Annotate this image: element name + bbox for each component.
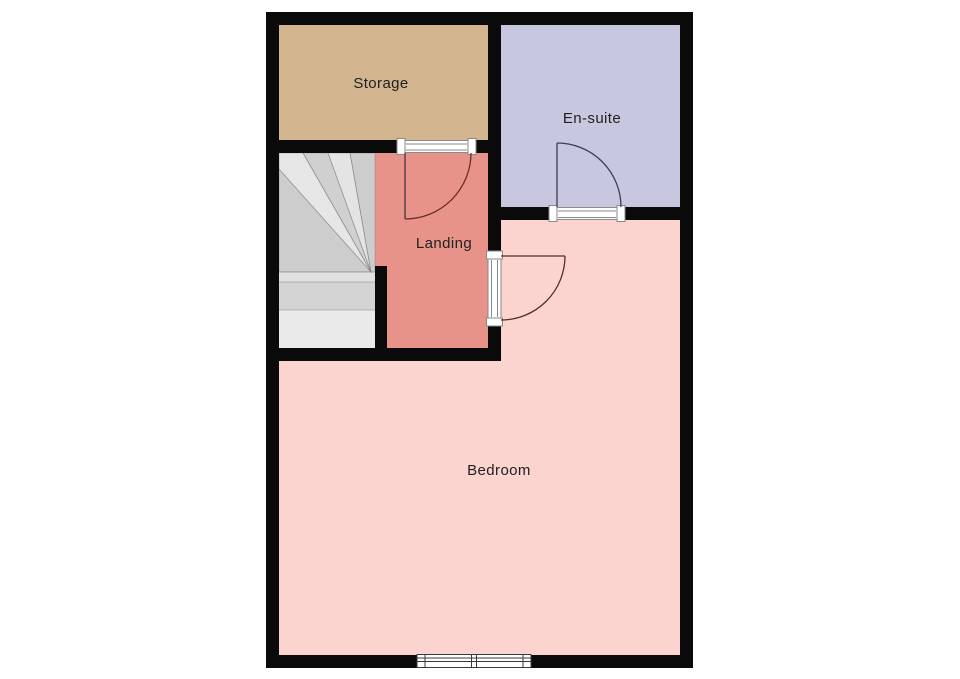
wall-landing-bedroom — [279, 348, 501, 361]
room-label-landing: Landing — [416, 235, 472, 252]
storage-door-jamb — [397, 139, 405, 155]
bedroom-door-frame — [488, 252, 501, 326]
room-label-storage: Storage — [353, 75, 408, 92]
bedroom-door-jamb — [487, 318, 503, 326]
storage-door-jamb — [468, 139, 476, 155]
room-label-bedroom: Bedroom — [467, 462, 531, 479]
room-label-ensuite: En-suite — [563, 110, 621, 127]
outer-wall-left — [266, 12, 279, 668]
stair-tread-1 — [279, 272, 375, 282]
outer-wall-top — [266, 12, 693, 25]
wall-stairs-landing-stub — [375, 266, 387, 348]
stair-tread-3 — [279, 310, 375, 348]
staircase — [279, 153, 375, 348]
window — [417, 655, 531, 668]
bedroom-door-jamb — [487, 251, 503, 259]
storage-door-frame — [397, 141, 476, 153]
ensuite-door-jamb — [617, 206, 625, 222]
ensuite-door-jamb — [549, 206, 557, 222]
stair-tread-2 — [279, 282, 375, 310]
floor-plan: Storage En-suite Landing Bedroom — [0, 0, 960, 679]
outer-wall-right — [680, 12, 693, 668]
